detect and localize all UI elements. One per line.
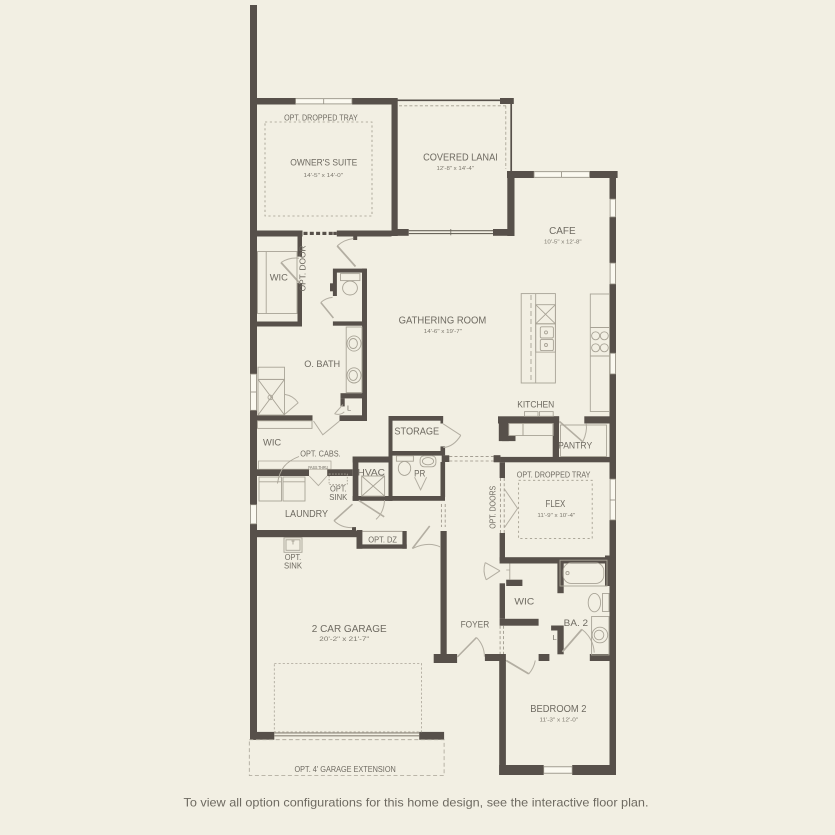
svg-text:FOYER: FOYER — [461, 620, 490, 630]
svg-text:PR: PR — [414, 469, 425, 480]
svg-text:PANTRY: PANTRY — [558, 441, 593, 452]
svg-text:14'-6" x 19'-7": 14'-6" x 19'-7" — [424, 329, 462, 335]
svg-text:10'-5" x 12'-8": 10'-5" x 12'-8" — [544, 239, 582, 245]
svg-text:11'-9" x 10'-4": 11'-9" x 10'-4" — [537, 513, 575, 519]
svg-text:HVAC: HVAC — [358, 467, 386, 478]
svg-text:L: L — [347, 403, 351, 412]
svg-text:KITCHEN: KITCHEN — [517, 400, 554, 411]
svg-text:BA. 2: BA. 2 — [564, 618, 588, 629]
svg-text:14'-5" x 14'-0": 14'-5" x 14'-0" — [304, 173, 344, 179]
svg-text:LAUNDRY: LAUNDRY — [285, 509, 329, 520]
svg-text:PASS THRU: PASS THRU — [308, 465, 328, 470]
svg-text:BEDROOM 2: BEDROOM 2 — [530, 704, 586, 715]
svg-text:To view all option configurati: To view all option configurations for th… — [184, 796, 649, 810]
svg-text:20'-2" x 21'-7": 20'-2" x 21'-7" — [319, 637, 369, 643]
svg-text:OPT. DROPPED TRAY: OPT. DROPPED TRAY — [284, 113, 358, 123]
svg-text:SINK: SINK — [329, 493, 347, 502]
svg-text:O. BATH: O. BATH — [304, 359, 340, 369]
svg-text:CAFE: CAFE — [549, 226, 576, 237]
svg-text:WIC: WIC — [514, 596, 534, 607]
svg-text:COVERED LANAI: COVERED LANAI — [423, 153, 498, 164]
svg-text:OPT. CABS.: OPT. CABS. — [300, 448, 340, 458]
svg-text:OPT. DROPPED TRAY: OPT. DROPPED TRAY — [517, 469, 591, 479]
svg-text:OPT. 4' GARAGE EXTENSION: OPT. 4' GARAGE EXTENSION — [295, 764, 396, 774]
svg-text:OPT. DZ: OPT. DZ — [368, 534, 397, 544]
svg-text:OPT. DOOR: OPT. DOOR — [299, 245, 308, 291]
svg-text:12'-8" x 14'-4": 12'-8" x 14'-4" — [437, 166, 474, 172]
svg-text:11'-3" x 12'-0": 11'-3" x 12'-0" — [540, 718, 579, 724]
svg-text:OWNER'S SUITE: OWNER'S SUITE — [290, 158, 357, 169]
svg-text:OPT. DOORS: OPT. DOORS — [487, 485, 497, 528]
svg-text:WIC: WIC — [263, 438, 281, 449]
svg-text:GATHERING ROOM: GATHERING ROOM — [399, 316, 487, 327]
svg-text:OPT.: OPT. — [330, 484, 347, 493]
svg-text:FLEX: FLEX — [546, 499, 566, 510]
svg-text:L: L — [553, 633, 557, 642]
svg-text:STORAGE: STORAGE — [394, 426, 439, 437]
svg-text:SINK: SINK — [284, 562, 302, 571]
svg-text:WIC: WIC — [270, 272, 288, 283]
svg-text:2 CAR GARAGE: 2 CAR GARAGE — [312, 624, 387, 635]
